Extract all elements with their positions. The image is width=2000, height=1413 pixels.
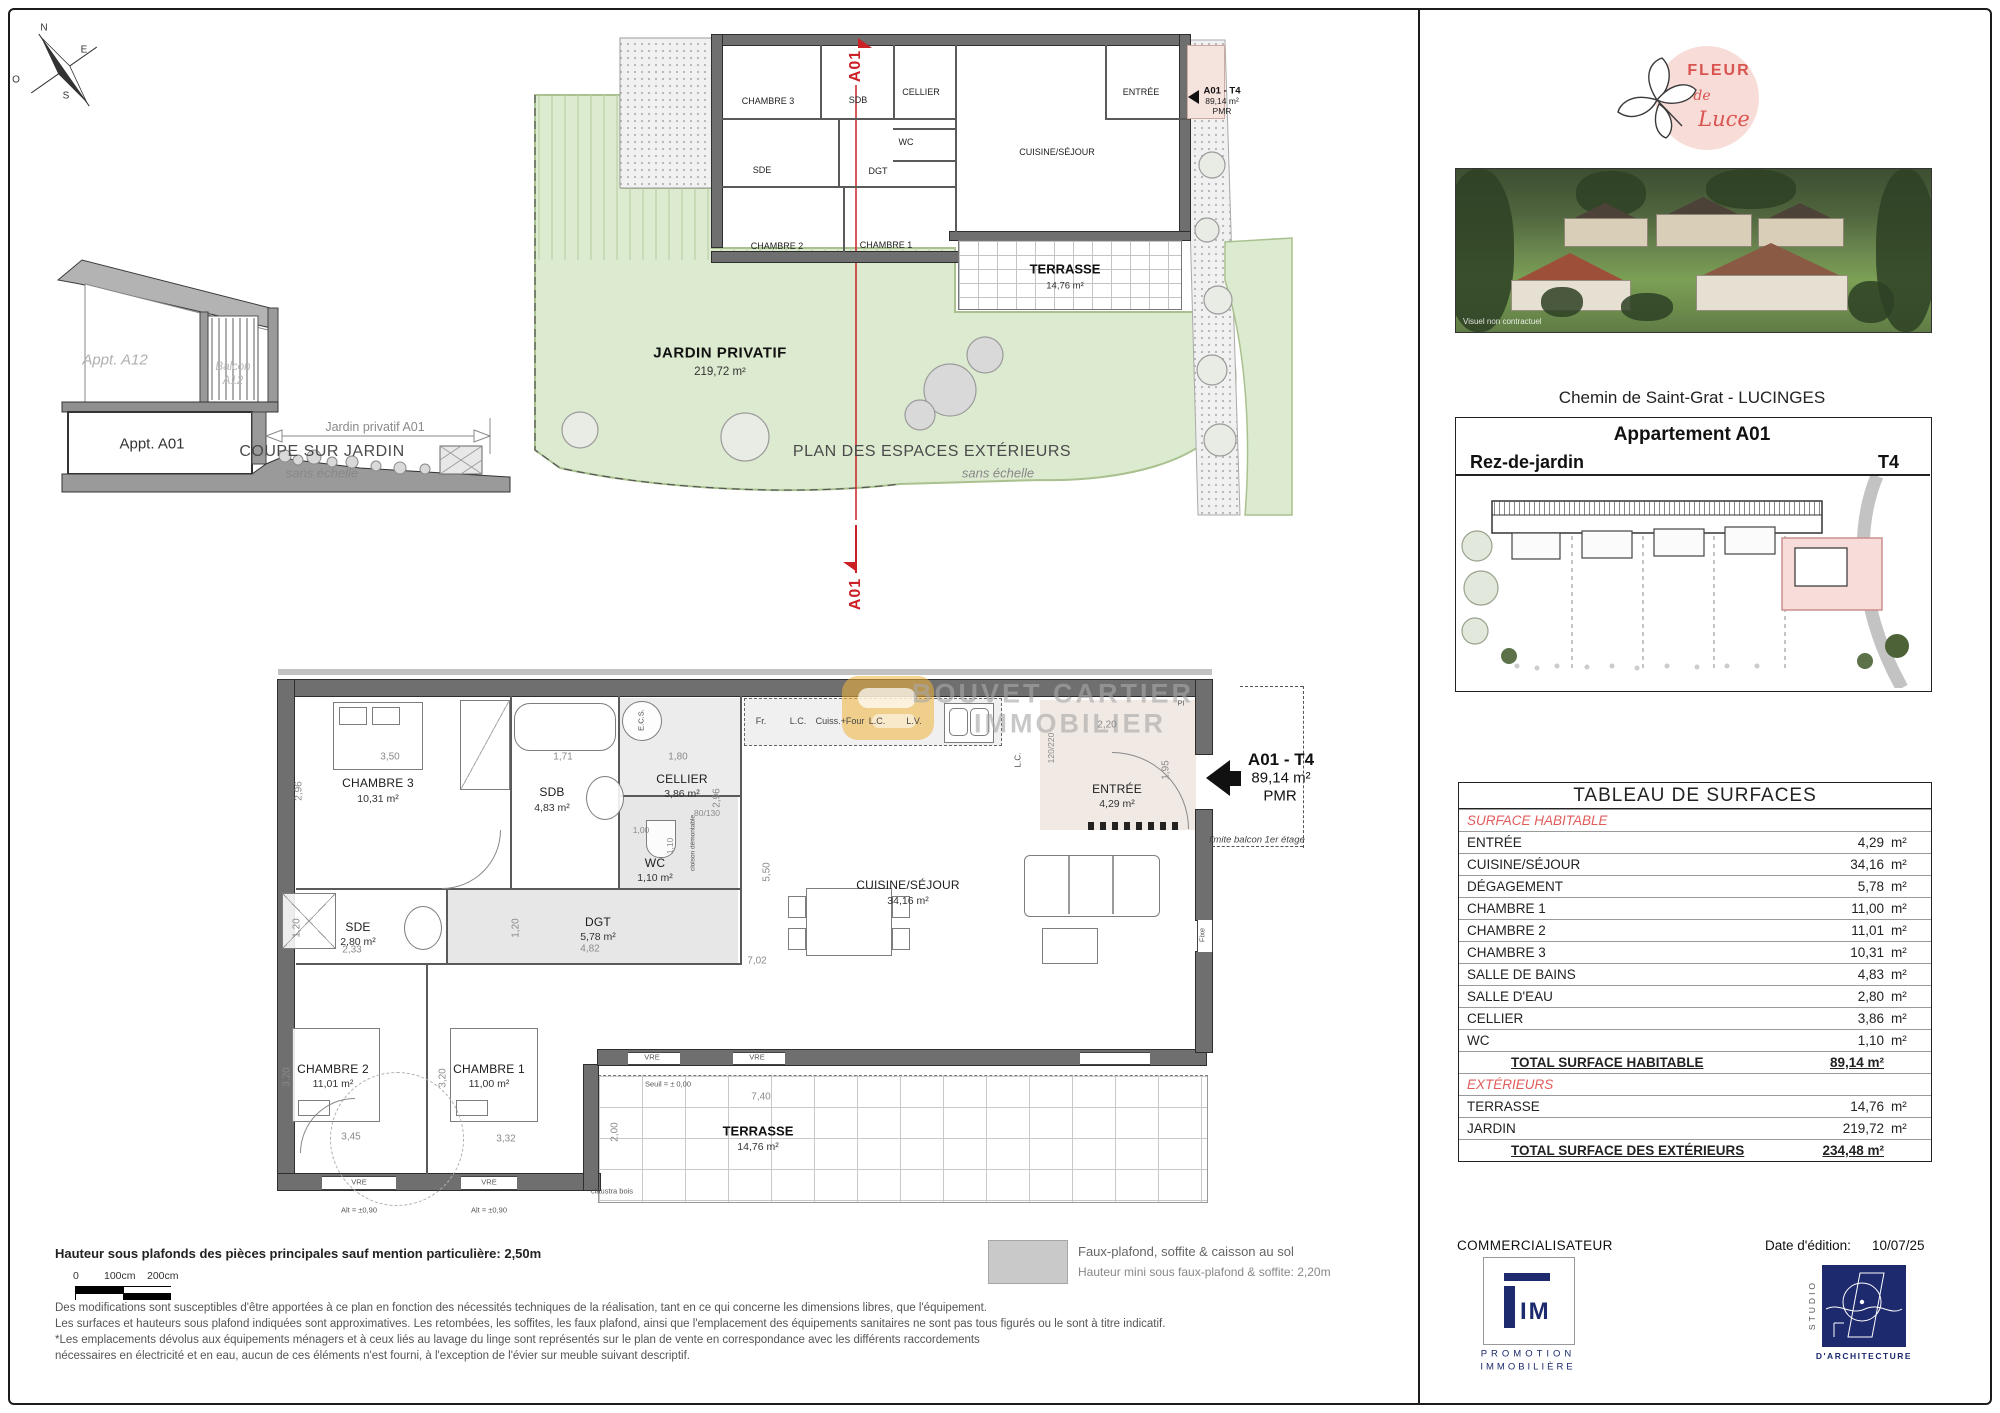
chalet [1758, 203, 1842, 247]
ext-room-chambre1: CHAMBRE 1 [860, 240, 913, 250]
row-label: CELLIER [1467, 1011, 1523, 1026]
dim: 1,20 [292, 918, 303, 937]
kitchen-sink-bowl [949, 708, 968, 736]
ext-unit-area: 89,14 m² [1205, 96, 1239, 106]
logo-text-de: de [1693, 88, 1710, 104]
plan-sheet: N E S O Appt. A12 Balcon [0, 0, 2000, 1413]
coupe-label-balcon-1: Balcon [215, 361, 250, 373]
table-row: CHAMBRE 111,00m² [1459, 897, 1931, 919]
kitchen-lv-label: L.V. [906, 716, 921, 726]
dim: 2,20 [1097, 720, 1116, 731]
row-value: 5,78 [1563, 879, 1884, 894]
kitchen-lc-vertical: L.C. [1014, 753, 1023, 768]
row-label: TOTAL SURFACE DES EXTÉRIEURS [1511, 1143, 1744, 1158]
ext-partition [893, 128, 955, 130]
surface-table-title: TABLEAU DE SURFACES [1459, 783, 1931, 809]
dim: 4,82 [580, 944, 599, 955]
table-row-total: TOTAL SURFACE HABITABLE89,14 m² [1459, 1051, 1931, 1073]
scalebar-200: 200cm [147, 1270, 179, 1282]
row-label: ENTRÉE [1467, 835, 1522, 850]
ext-unit-pmr: PMR [1213, 106, 1232, 116]
balcony-limit-line [1303, 686, 1304, 848]
alt-label: Alt = ±0,90 [471, 1206, 507, 1215]
ext-partition [955, 45, 957, 232]
logo-text-fleur: FLEUR [1687, 62, 1750, 80]
table-row-section: EXTÉRIEURS [1459, 1073, 1931, 1095]
scalebar-seg [76, 1293, 123, 1300]
row-label: SALLE DE BAINS [1467, 967, 1576, 982]
balcony-limit-label: limite balcon 1er étage [1209, 835, 1305, 846]
coupe-label-appt-a01: Appt. A01 [119, 436, 184, 453]
row-label: SALLE D'EAU [1467, 989, 1553, 1004]
row-unit: m² [1884, 1121, 1925, 1136]
main-wall-right-top [1196, 680, 1212, 754]
ext-room-cuisine: CUISINE/SÉJOUR [1019, 147, 1095, 157]
ext-room-wc: WC [899, 137, 914, 147]
ext-wall-left [712, 35, 722, 247]
unit-type: T4 [1878, 452, 1899, 473]
table-row-section: SURFACE HABITABLE [1459, 809, 1931, 831]
room-chambre1: CHAMBRE 1 [453, 1062, 525, 1076]
ext-partition [843, 186, 845, 252]
chair [788, 928, 806, 950]
row-value: 234,48 m² [1744, 1143, 1884, 1158]
compass-n: N [40, 23, 47, 34]
surface-table: TABLEAU DE SURFACES SURFACE HABITABLE EN… [1458, 782, 1932, 1162]
fim-logo-bar [1504, 1273, 1550, 1281]
row-label: TERRASSE [1467, 1099, 1540, 1114]
coupe-caption: COUPE SUR JARDIN [239, 443, 404, 461]
table-row: TERRASSE14,76m² [1459, 1095, 1931, 1117]
row-label: EXTÉRIEURS [1467, 1077, 1553, 1092]
ext-room-terrasse: TERRASSE [1030, 262, 1101, 277]
project-address: Chemin de Saint-Grat - LUCINGES [1559, 388, 1825, 408]
table-row: CELLIER3,86m² [1459, 1007, 1931, 1029]
row-unit: m² [1884, 1033, 1925, 1048]
fim-promotion-label: PROMOTION [1481, 1349, 1576, 1360]
row-value: 219,72 [1516, 1121, 1884, 1136]
balcony-limit-line [1212, 846, 1303, 847]
kitchen-lc-label: L.C. [790, 716, 807, 726]
tree [1455, 169, 1514, 332]
ext-wall-top [712, 35, 1190, 45]
ecs-label: E.C.S. [637, 709, 646, 731]
room-chambre3-area: 10,31 m² [357, 793, 398, 805]
partition [296, 963, 742, 965]
room-sdb-area: 4,83 m² [534, 802, 570, 814]
row-unit: m² [1884, 989, 1925, 1004]
dim: 1,95 [1161, 760, 1172, 779]
balcony-limit-line [1240, 686, 1303, 687]
table-row: CUISINE/SÉJOUR34,16m² [1459, 853, 1931, 875]
ext-partition [893, 45, 895, 120]
seuil-label: Seuil = ± 0,00 [645, 1080, 691, 1089]
coupe-label-balcon-2: A12 [223, 375, 243, 387]
table-row: JARDIN219,72m² [1459, 1117, 1931, 1139]
ext-partition [820, 45, 822, 120]
sofa-cushion-line [1068, 856, 1070, 914]
dim: 2,96 [294, 781, 305, 800]
room-entree: ENTRÉE [1092, 782, 1142, 796]
ext-jardin-area: 219,72 m² [694, 366, 746, 378]
sofa [1024, 855, 1160, 917]
ext-wall-bottom-cuisine [950, 232, 1190, 240]
studio-vertical-label: STUDIO [1807, 1280, 1817, 1330]
alt-label: Alt = ±0,90 [341, 1206, 377, 1215]
row-unit: m² [1884, 945, 1925, 960]
table-row: ENTRÉE4,29m² [1459, 831, 1931, 853]
chair [892, 928, 910, 950]
ext-room-dgt: DGT [869, 166, 888, 176]
dim: 7,02 [747, 956, 766, 967]
room-chambre1-area: 11,00 m² [469, 1078, 510, 1090]
pi-label: PI [1177, 699, 1184, 708]
ext-unit-code: A01 - T4 [1204, 86, 1241, 97]
facade-band [278, 669, 1212, 675]
room-cuisine-area: 34,16 m² [887, 895, 928, 907]
ext-room-chambre3: CHAMBRE 3 [742, 96, 795, 106]
chalet [1564, 203, 1646, 247]
house-roof [1511, 253, 1629, 283]
dim: 5,50 [762, 862, 773, 881]
fim-immobiliere-label: IMMOBILIÈRE [1480, 1362, 1575, 1373]
partition [510, 696, 512, 890]
dim: 3,50 [380, 752, 399, 763]
main-wall-right-mid [1196, 810, 1212, 920]
room-sdb: SDB [539, 785, 564, 799]
fim-logo: IM [1483, 1257, 1575, 1345]
bathtub [514, 703, 616, 751]
vre-label: VRE [481, 1178, 496, 1187]
dim: 7,40 [751, 1092, 770, 1103]
row-value: 14,76 [1540, 1099, 1884, 1114]
scalebar-0: 0 [73, 1270, 79, 1282]
unit-area: 89,14 m² [1251, 770, 1310, 787]
row-unit: m² [1884, 901, 1925, 916]
table-row: CHAMBRE 310,31m² [1459, 941, 1931, 963]
unit-level: Rez-de-jardin [1470, 452, 1584, 473]
room-terrasse-area: 14,76 m² [737, 1141, 778, 1153]
row-value: 11,01 [1546, 923, 1884, 938]
watermark-text-2: IMMOBILIER [974, 709, 1166, 740]
table-row: SALLE D'EAU2,80m² [1459, 985, 1931, 1007]
house-roof [1696, 243, 1846, 278]
legend-line-2: Hauteur mini sous faux-plafond & soffite… [1078, 1265, 1331, 1279]
row-unit: m² [1884, 857, 1925, 872]
kitchen-lc-label: L.C. [869, 716, 886, 726]
dim: 3,20 [438, 1068, 449, 1087]
row-unit: m² [1884, 1099, 1925, 1114]
row-value: 89,14 m² [1704, 1055, 1884, 1070]
scalebar-seg [123, 1293, 170, 1299]
table-row-total: TOTAL SURFACE DES EXTÉRIEURS234,48 m² [1459, 1139, 1931, 1161]
ceiling-height-note: Hauteur sous plafonds des pièces princip… [55, 1246, 541, 1261]
row-label: TOTAL SURFACE HABITABLE [1511, 1055, 1704, 1070]
fim-logo-stem [1504, 1286, 1515, 1328]
compass-e: E [81, 45, 88, 56]
coupe-scale-note: sans échelle [286, 466, 358, 481]
room-wc: WC [645, 856, 665, 870]
exterior-plan-scale-note: sans échelle [962, 466, 1034, 481]
ext-room-cellier: CELLIER [902, 87, 940, 97]
room-wc-area: 1,10 m² [637, 872, 673, 884]
partition [446, 888, 448, 965]
project-photo: Visuel non contractuel [1455, 168, 1932, 333]
row-label: CHAMBRE 3 [1467, 945, 1546, 960]
fixe-label: Fixe [1198, 928, 1207, 942]
chalet-body [1564, 218, 1648, 247]
kitchen-oven-label: Cuiss.+Four [816, 716, 865, 726]
dining-table [806, 888, 892, 956]
row-value: 34,16 [1580, 857, 1884, 872]
commercialisateur-label: COMMERCIALISATEUR [1457, 1238, 1613, 1253]
ext-section-flag-top [858, 38, 872, 48]
scalebar-100: 100cm [104, 1270, 136, 1282]
dim: 1,71 [553, 752, 572, 763]
coupe-dim-jardin-privatif: Jardin privatif A01 [325, 420, 424, 434]
room-cellier: CELLIER [656, 772, 707, 786]
dim: 3,45 [341, 1132, 360, 1143]
pillow [372, 707, 400, 725]
row-value: 1,10 [1490, 1033, 1885, 1048]
date-edition-label: Date d'édition: [1765, 1238, 1851, 1253]
table-row: WC1,10m² [1459, 1029, 1931, 1051]
shower [282, 893, 336, 949]
row-value: 11,00 [1546, 901, 1884, 916]
fim-logo-im: IM [1520, 1298, 1551, 1326]
ext-section-line [855, 525, 857, 573]
unit-title: Appartement A01 [1614, 424, 1771, 446]
table-row: DÉGAGEMENT5,78m² [1459, 875, 1931, 897]
legend-line-1: Faux-plafond, soffite & caisson au sol [1078, 1244, 1294, 1259]
room-chambre3: CHAMBRE 3 [342, 776, 414, 790]
unit-arrow-stem [1229, 771, 1241, 786]
partition [740, 696, 742, 965]
cloison-label: cloison démontable [690, 815, 697, 871]
pillow [339, 707, 367, 725]
studio-bottom-label: D'ARCHITECTURE [1816, 1351, 1912, 1361]
kitchen-fridge-label: Fr. [756, 716, 767, 726]
row-label: SURFACE HABITABLE [1467, 813, 1608, 828]
photo-disclaimer: Visuel non contractuel [1463, 317, 1542, 326]
threshold-dotted-strip [1088, 822, 1184, 830]
row-value: 3,86 [1523, 1011, 1884, 1026]
ext-wall-bottom-chambres [712, 252, 958, 262]
date-edition-value: 10/07/25 [1872, 1238, 1925, 1253]
sink [404, 906, 442, 950]
shrub [1621, 293, 1673, 321]
chalet [1656, 197, 1750, 247]
row-unit: m² [1884, 835, 1925, 850]
room-terrasse: TERRASSE [723, 1124, 794, 1139]
vre-label: VRE [749, 1053, 764, 1062]
row-label: WC [1467, 1033, 1490, 1048]
row-unit: m² [1884, 923, 1925, 938]
ext-section-mark-top: A01 [847, 50, 865, 82]
room-cuisine: CUISINE/SÉJOUR [856, 878, 959, 892]
ext-room-chambre2: CHAMBRE 2 [751, 241, 804, 251]
exterior-plan-caption: PLAN DES ESPACES EXTÉRIEURS [793, 443, 1071, 461]
ext-room-sde: SDE [753, 165, 772, 175]
row-value: 10,31 [1546, 945, 1884, 960]
house-red-roof [1696, 243, 1846, 311]
ext-partition [722, 186, 955, 188]
row-unit: m² [1884, 879, 1925, 894]
unit-arrow-icon [1206, 760, 1230, 796]
table-row: CHAMBRE 211,01m² [1459, 919, 1931, 941]
unit-pmr: PMR [1263, 788, 1296, 805]
dim: 3,32 [496, 1134, 515, 1145]
dim: 1,20 [511, 918, 522, 937]
compass-icon [18, 20, 110, 116]
coffee-table [1042, 928, 1098, 964]
room-dgt-area: 5,78 m² [580, 931, 616, 943]
ext-partition [1105, 118, 1190, 120]
room-dgt: DGT [585, 915, 611, 929]
sink [586, 776, 624, 820]
ext-room-entree: ENTRÉE [1123, 87, 1160, 97]
room-chambre2-area: 11,01 m² [313, 1078, 354, 1090]
vre-label: VRE [644, 1053, 659, 1062]
dim: 3,20 [282, 1067, 293, 1086]
ext-partition [1105, 45, 1107, 118]
dim: 80/130 [694, 808, 720, 818]
table-row: SALLE DE BAINS4,83m² [1459, 963, 1931, 985]
claustra-label: claustra bois [591, 1187, 633, 1196]
row-label: DÉGAGEMENT [1467, 879, 1563, 894]
wardrobe [460, 700, 510, 790]
dim: 1,10 [665, 838, 675, 855]
dim: 120/220 [1046, 733, 1056, 764]
watermark-text-1: BOUVET CARTIER [912, 679, 1194, 710]
sofa-cushion-line [1112, 856, 1114, 914]
row-label: JARDIN [1467, 1121, 1516, 1136]
disclaimer-line: *Les emplacements dévolus aux équipement… [55, 1334, 980, 1346]
ext-section-mark-bottom: A01 [847, 578, 865, 610]
compass-o: O [12, 75, 20, 86]
site-plan [1457, 476, 1928, 688]
row-label: CHAMBRE 1 [1467, 901, 1546, 916]
house-body [1696, 275, 1848, 311]
dim: 1,00 [633, 825, 650, 835]
dim: 2,33 [342, 945, 361, 956]
chair [788, 896, 806, 918]
logo-text-luce: Luce [1698, 107, 1750, 131]
ext-partition [838, 118, 840, 186]
window [1080, 1052, 1150, 1065]
row-value: 2,80 [1553, 989, 1884, 1004]
ext-jardin-title: JARDIN PRIVATIF [653, 345, 787, 362]
row-unit: m² [1884, 1011, 1925, 1026]
main-wall-mid [584, 1065, 598, 1190]
dim: 2,96 [712, 788, 723, 807]
disclaimer-line: nécessaires en électricité et en eau, au… [55, 1350, 690, 1362]
legend-swatch [988, 1240, 1068, 1284]
room-cellier-area: 3,86 m² [664, 788, 700, 800]
partition [296, 888, 742, 890]
disclaimer-line: Les surfaces et hauteurs sous plafond in… [55, 1318, 1165, 1330]
shrub [1848, 281, 1894, 323]
ext-partition [893, 160, 955, 162]
compass-s: S [63, 91, 70, 102]
watermark-logo-inner [858, 688, 916, 708]
row-value: 4,29 [1522, 835, 1884, 850]
dim: 1,80 [668, 752, 687, 763]
row-value: 4,83 [1576, 967, 1884, 982]
main-wall-right-low [1196, 952, 1212, 1052]
column-divider [1418, 8, 1420, 1405]
room-sde: SDE [345, 920, 370, 934]
scalebar [75, 1286, 171, 1300]
unit-code: A01 - T4 [1248, 750, 1314, 770]
ext-room-terrasse-area: 14,76 m² [1046, 281, 1084, 292]
main-terrasse-grid [598, 1075, 1208, 1203]
ext-unit-arrow-icon [1188, 90, 1199, 104]
row-label: CUISINE/SÉJOUR [1467, 857, 1580, 872]
dim: 2,00 [610, 1122, 621, 1141]
pillow [456, 1100, 488, 1116]
studio-logo [1822, 1265, 1906, 1347]
room-entree-area: 4,29 m² [1099, 798, 1135, 810]
shrub [1541, 287, 1583, 317]
ext-room-sdb: SDB [849, 95, 868, 105]
room-chambre2: CHAMBRE 2 [297, 1062, 369, 1076]
row-label: CHAMBRE 2 [1467, 923, 1546, 938]
vre-label: VRE [351, 1178, 366, 1187]
disclaimer-line: Des modifications sont susceptibles d'êt… [55, 1302, 987, 1314]
row-unit: m² [1884, 967, 1925, 982]
coupe-label-appt-a12: Appt. A12 [82, 352, 147, 369]
